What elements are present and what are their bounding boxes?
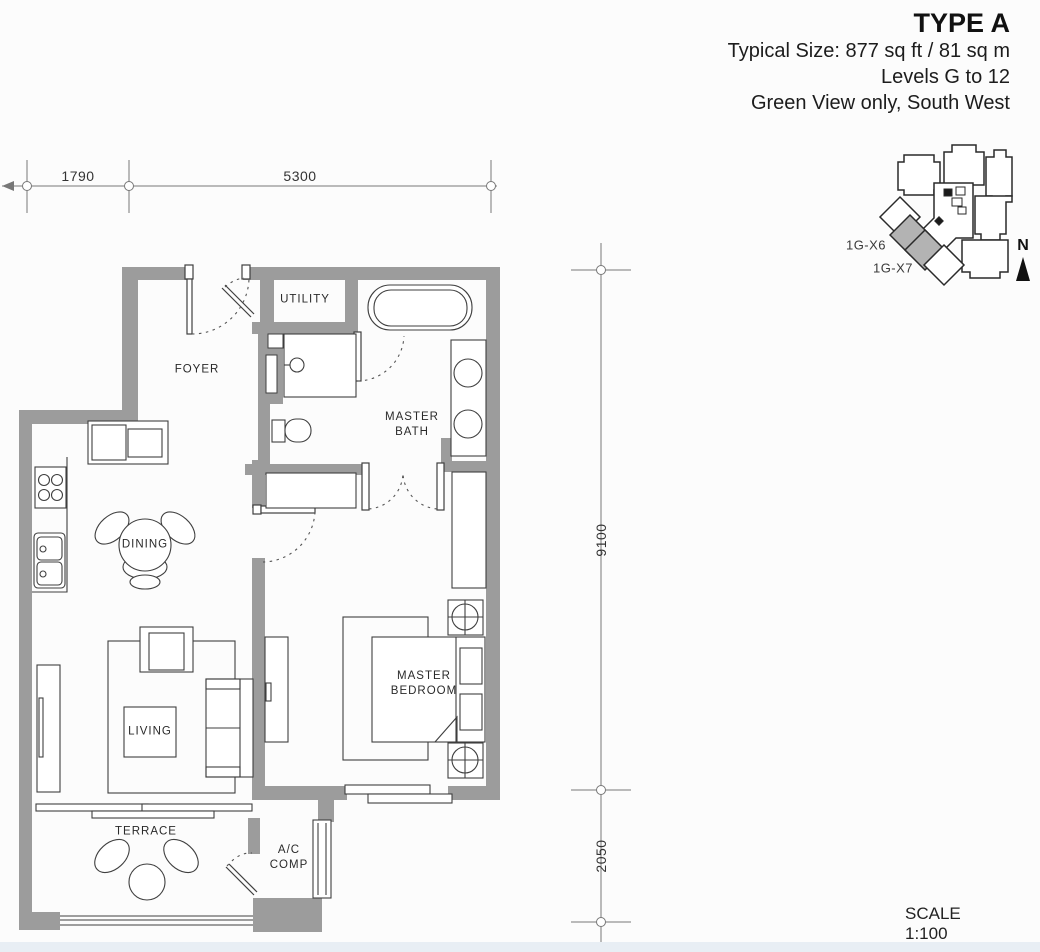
scale-note: SCALE 1:100 — [905, 904, 995, 944]
floor-plan-drawing — [0, 0, 1040, 952]
room-label-master-bedroom: MASTER BEDROOM — [391, 669, 457, 699]
bath-fixtures — [272, 285, 486, 456]
room-label-dining: DINING — [122, 538, 168, 553]
room-label-ac-comp: A/C COMP — [270, 843, 309, 873]
key-plan-unit-label-1: 1G-X6 — [846, 238, 886, 253]
bedroom-fixtures — [265, 472, 486, 778]
view-line: Green View only, South West — [728, 90, 1010, 116]
north-arrow-icon — [1016, 257, 1030, 281]
terrace-table — [129, 864, 165, 900]
dresser — [265, 637, 288, 742]
room-label-foyer: FOYER — [175, 363, 220, 378]
living-fixtures — [37, 627, 253, 793]
dim-9100: 9100 — [593, 523, 609, 556]
room-label-terrace: TERRACE — [115, 825, 177, 840]
hob — [35, 467, 66, 508]
terrace-furniture — [88, 833, 204, 900]
room-label-master-bath: MASTER BATH — [385, 410, 439, 440]
wardrobe — [452, 472, 486, 588]
corridor-closet — [266, 473, 356, 508]
dim-1790: 1790 — [61, 168, 94, 184]
room-label-living: LIVING — [128, 725, 172, 740]
bedroom-door-leaf-right — [437, 463, 444, 510]
toilet — [272, 420, 285, 442]
dim-5300: 5300 — [283, 168, 316, 184]
room-label-utility: UTILITY — [280, 293, 330, 308]
title-block: TYPE A Typical Size: 877 sq ft / 81 sq m… — [728, 8, 1010, 116]
entry-door-leaf — [187, 279, 192, 334]
typical-size-line: Typical Size: 877 sq ft / 81 sq m — [728, 38, 1010, 64]
dim-2050: 2050 — [593, 839, 609, 872]
walls-group — [19, 267, 500, 932]
terrace-railing — [60, 916, 253, 925]
key-plan-unit-label-2: 1G-X7 — [873, 261, 913, 276]
unit-type-title: TYPE A — [728, 8, 1010, 38]
footer-band — [0, 942, 1040, 952]
windows-group — [36, 785, 452, 898]
armchair — [140, 627, 193, 672]
north-label: N — [1017, 237, 1029, 255]
bedroom-door-leaf-left — [362, 463, 369, 510]
shower — [284, 334, 356, 397]
levels-line: Levels G to 12 — [728, 64, 1010, 90]
vanity — [451, 340, 486, 456]
